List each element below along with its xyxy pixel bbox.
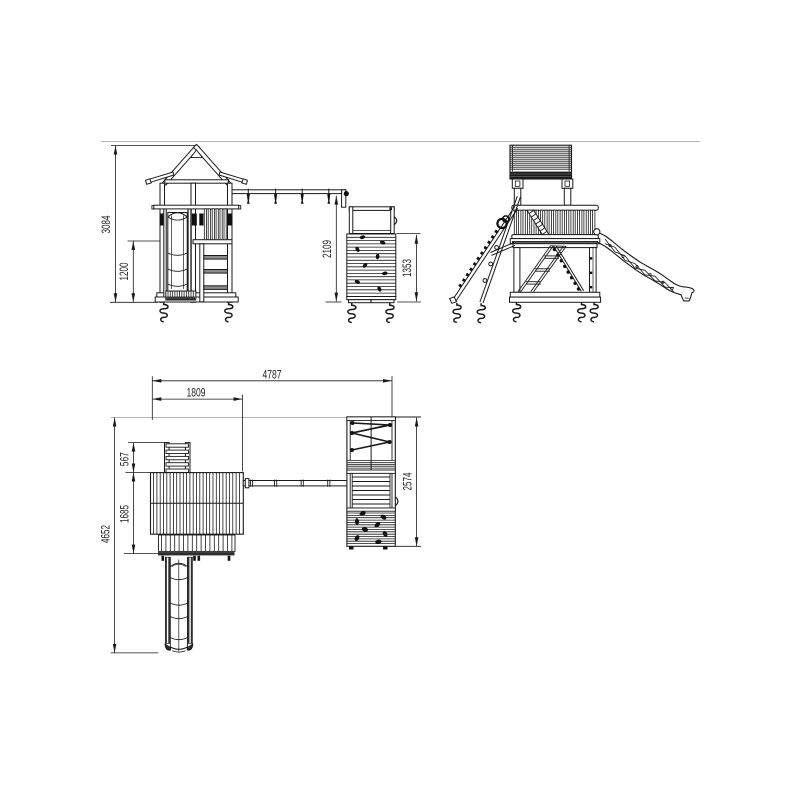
svg-text:1200: 1200 bbox=[119, 263, 131, 281]
svg-text:1809: 1809 bbox=[187, 388, 206, 400]
svg-text:2109: 2109 bbox=[322, 240, 334, 258]
svg-text:2574: 2574 bbox=[402, 472, 414, 490]
svg-text:3084: 3084 bbox=[101, 215, 113, 233]
svg-text:4652: 4652 bbox=[101, 525, 113, 543]
svg-text:567: 567 bbox=[119, 452, 131, 466]
svg-text:1685: 1685 bbox=[119, 505, 131, 523]
svg-text:4787: 4787 bbox=[263, 369, 282, 381]
svg-text:1353: 1353 bbox=[402, 259, 414, 277]
